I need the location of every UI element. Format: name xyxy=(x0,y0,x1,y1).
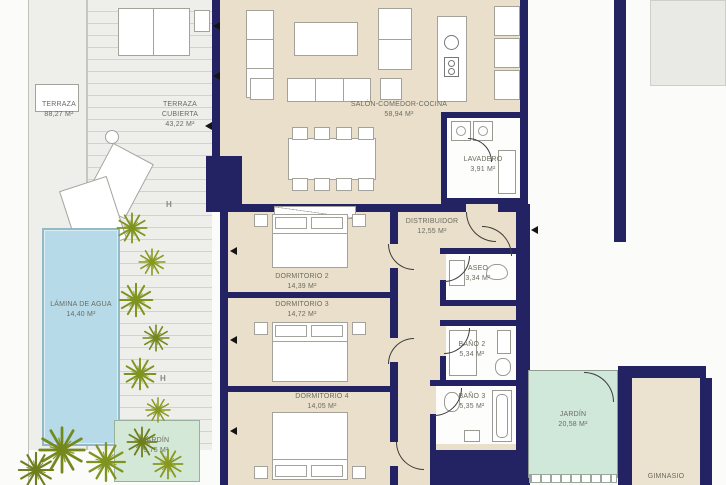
sink xyxy=(464,430,480,442)
kitchen-cabinet xyxy=(494,6,520,36)
room-label-bano3: BAÑO 3 5,35 m² xyxy=(442,392,502,412)
room-area: 43,22 m² xyxy=(152,120,208,130)
plant-icon xyxy=(16,450,56,485)
room-area: 3,34 m² xyxy=(448,274,508,284)
plant-icon xyxy=(117,281,155,319)
gimnasio-floor xyxy=(632,378,700,485)
dining-chair xyxy=(314,127,330,140)
wall-right-upper xyxy=(520,0,528,204)
plant-icon xyxy=(84,440,128,484)
dining-chair xyxy=(292,178,308,191)
h-marker: H xyxy=(166,200,172,209)
nightstand xyxy=(254,214,268,227)
pool xyxy=(42,228,120,446)
dining-chair xyxy=(314,178,330,191)
plant-icon xyxy=(151,447,185,481)
plant-icon xyxy=(137,247,167,277)
floor-plan: LÁMINA DE AGUA 14,40 m² JARDÍN 9,75 m² T… xyxy=(0,0,726,485)
sofa xyxy=(378,8,412,70)
room-name: LAVADERO xyxy=(447,155,519,165)
dining-chair xyxy=(358,178,374,191)
wall-corridor-3 xyxy=(390,362,398,420)
wall-gimnasio-left xyxy=(618,366,632,485)
window-marker xyxy=(230,427,237,435)
room-name: GIMNASIO xyxy=(630,472,702,482)
side-table xyxy=(250,78,274,100)
washing-machine xyxy=(473,121,493,141)
kitchen-cabinet xyxy=(494,70,520,100)
room-area: 14,39 m² xyxy=(252,282,352,292)
room-label-dorm2: DORMITORIO 2 14,39 m² xyxy=(252,272,352,292)
window-marker xyxy=(230,336,237,344)
wall-aseo-bottom xyxy=(440,300,516,306)
dining-chair xyxy=(358,127,374,140)
dining-chair xyxy=(336,127,352,140)
room-area: 20,58 m² xyxy=(538,420,608,430)
window-marker xyxy=(230,247,237,255)
wall-bottom-right-block xyxy=(430,450,530,485)
bed xyxy=(272,214,348,268)
nightstand xyxy=(254,322,268,335)
room-area: 14,05 m² xyxy=(272,402,372,412)
room-name: BAÑO 3 xyxy=(442,392,502,402)
h-marker: H xyxy=(160,374,166,383)
room-area: 14,40 m² xyxy=(44,310,118,320)
room-name: TERRAZA CUBIERTA xyxy=(152,100,208,120)
wall-lavadero-bottom xyxy=(441,198,528,204)
wall-corridor-2 xyxy=(390,268,398,338)
room-name: LÁMINA DE AGUA xyxy=(44,300,118,310)
bed xyxy=(272,322,348,382)
side-table xyxy=(380,78,402,100)
room-name: SALÓN-COMEDOR-COCINA xyxy=(340,100,458,110)
room-area: 12,55 m² xyxy=(390,227,474,237)
room-label-aseo: ASEO 3,34 m² xyxy=(448,264,508,284)
room-label-bano2: BAÑO 2 5,34 m² xyxy=(442,340,502,360)
outdoor-round-table xyxy=(105,130,119,144)
kitchen-island xyxy=(437,16,467,102)
window-marker xyxy=(205,122,212,130)
room-name: JARDÍN xyxy=(538,410,608,420)
wall-bano23 xyxy=(430,380,516,386)
room-label-lamina-de-agua: LÁMINA DE AGUA 14,40 m² xyxy=(44,300,118,320)
room-name: DORMITORIO 2 xyxy=(252,272,352,282)
room-label-jardin: JARDÍN 20,58 m² xyxy=(538,410,608,430)
nightstand xyxy=(352,466,366,479)
room-label-lavadero: LAVADERO 3,91 m² xyxy=(447,155,519,175)
window-marker xyxy=(213,22,220,30)
plot-edge-line xyxy=(28,0,29,485)
nightstand xyxy=(352,322,366,335)
dining-chair xyxy=(292,127,308,140)
room-area: 58,94 m² xyxy=(340,110,458,120)
wall-corridor-4 xyxy=(390,420,398,442)
window-marker xyxy=(531,226,538,234)
room-area: 3,91 m² xyxy=(447,165,519,175)
plant-icon xyxy=(144,396,172,424)
wall-dorm2-dorm3 xyxy=(228,292,392,298)
outdoor-sofa xyxy=(118,8,190,56)
room-name: ASEO xyxy=(448,264,508,274)
dining-table xyxy=(288,138,376,180)
bed xyxy=(272,412,348,480)
outdoor-side-table xyxy=(194,10,210,32)
room-area: 5,35 m² xyxy=(442,402,502,412)
room-name: DISTRIBUIDOR xyxy=(390,217,474,227)
cooktop-icon xyxy=(444,57,459,77)
coffee-table xyxy=(294,22,358,56)
room-label-terraza: TERRAZA 88,27 m² xyxy=(28,100,90,120)
room-label-salon: SALÓN-COMEDOR-COCINA 58,94 m² xyxy=(340,100,458,120)
plant-icon xyxy=(122,356,158,392)
kitchen-cabinet xyxy=(494,38,520,68)
bench-sofa xyxy=(287,78,371,102)
sink-icon xyxy=(444,35,459,50)
wall-bano3-left xyxy=(430,414,436,450)
garden-hatch-strip xyxy=(529,474,617,483)
plant-icon xyxy=(115,211,149,245)
room-name: TERRAZA xyxy=(28,100,90,110)
room-name: BAÑO 2 xyxy=(442,340,502,350)
room-label-dorm4: DORMITORIO 4 14,05 m² xyxy=(272,392,372,412)
wall-bano2-top xyxy=(440,320,516,326)
wall-corridor-5 xyxy=(390,466,398,485)
plant-icon xyxy=(141,323,171,353)
wall-gimnasio-top xyxy=(632,366,706,378)
dining-chair xyxy=(336,178,352,191)
wall-bedrooms-left xyxy=(220,212,228,485)
room-label-dorm3: DORMITORIO 3 14,72 m² xyxy=(252,300,352,320)
room-name: DORMITORIO 3 xyxy=(252,300,352,310)
room-name: DORMITORIO 4 xyxy=(272,392,372,402)
room-label-gimnasio: GIMNASIO xyxy=(630,472,702,482)
room-label-terraza-cubierta: TERRAZA CUBIERTA 43,22 m² xyxy=(152,100,208,129)
room-label-distribuidor: DISTRIBUIDOR 12,55 m² xyxy=(390,217,474,237)
room-area: 5,34 m² xyxy=(442,350,502,360)
room-area: 14,72 m² xyxy=(252,310,352,320)
wall-gimnasio-right xyxy=(700,378,712,485)
nightstand xyxy=(254,466,268,479)
room-area: 88,27 m² xyxy=(28,110,90,120)
neighbor-terrace-box xyxy=(650,0,726,86)
toilet xyxy=(495,358,511,376)
nightstand xyxy=(352,214,366,227)
wall-neighbor-band xyxy=(614,0,626,242)
window-marker xyxy=(213,72,220,80)
